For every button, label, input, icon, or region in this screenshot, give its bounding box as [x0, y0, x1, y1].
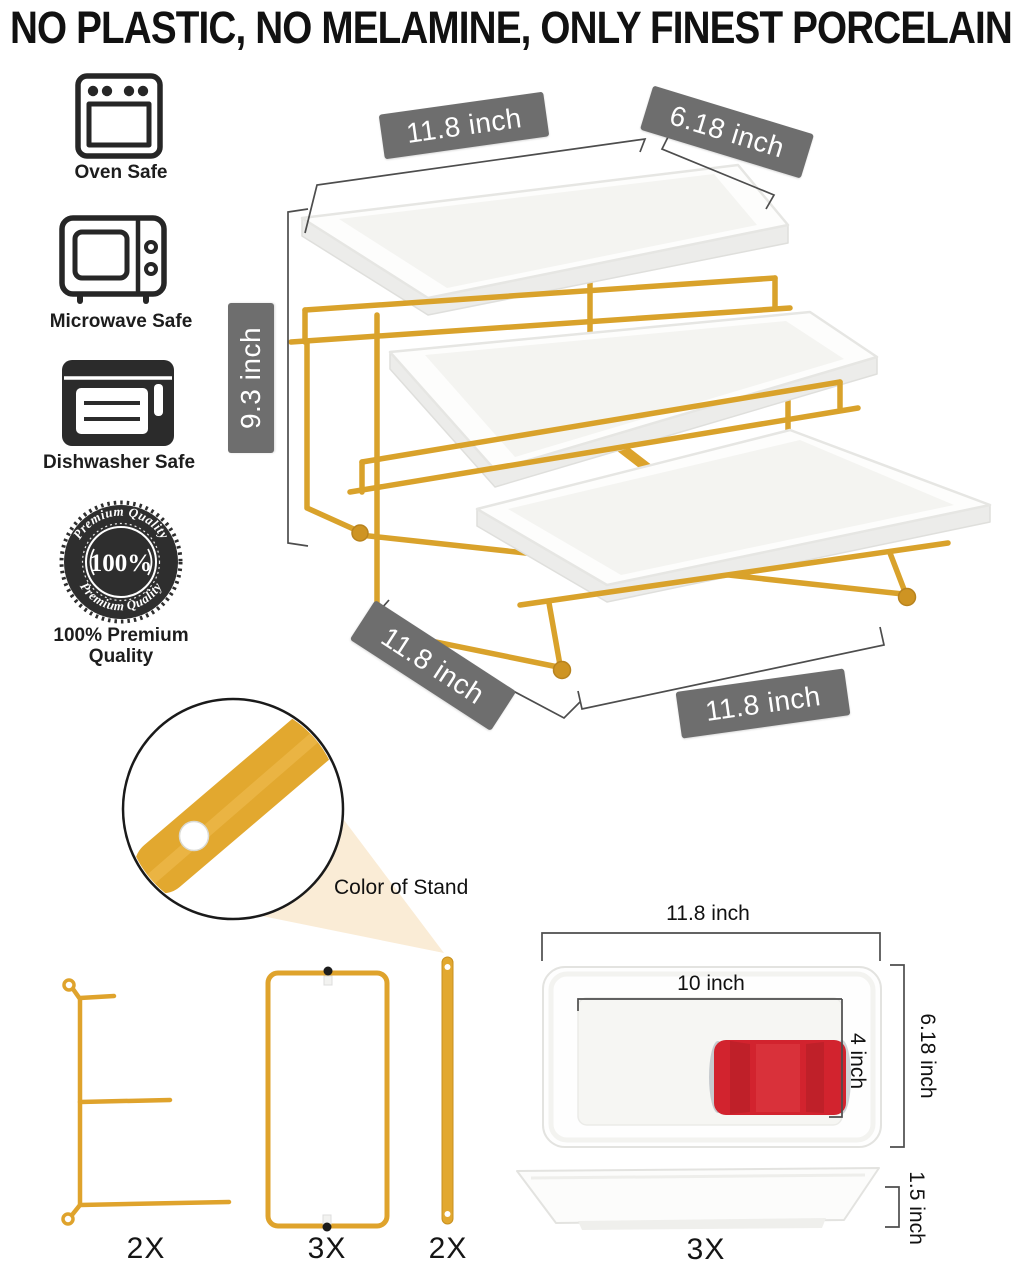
- flat-bar-qty: 2X: [403, 1232, 493, 1266]
- plate-outer-length-label: 11.8 inch: [628, 902, 788, 926]
- part-flat-bar: [442, 957, 453, 1224]
- product-infographic: NO PLASTIC, NO MELAMINE, ONLY FINEST POR…: [0, 0, 1024, 1266]
- stand-color-callout: [123, 699, 444, 953]
- oven-safe-label: Oven Safe: [36, 163, 206, 184]
- color-of-stand-label: Color of Stand: [334, 876, 468, 900]
- rect-frame-qty: 3X: [282, 1232, 372, 1266]
- part-rect-frame: [268, 967, 387, 1232]
- plate-inner-width-label: 4 inch: [845, 1016, 869, 1106]
- tiered-stand: [291, 165, 990, 679]
- dishwasher-icon: [62, 360, 174, 446]
- badge-center-text: 100%: [90, 550, 153, 577]
- plate-outer-width-label: 6.18 inch: [915, 1001, 939, 1111]
- dim-height-badge: 9.3 inch: [228, 303, 274, 453]
- plate-side-view: [517, 1168, 879, 1230]
- plate-qty: 3X: [661, 1233, 751, 1266]
- plate-height-label: 1.5 inch: [904, 1158, 928, 1258]
- ball-foot-left: [352, 525, 368, 541]
- part-side-frame: [63, 980, 229, 1224]
- side-frame-qty: 2X: [101, 1232, 191, 1266]
- ball-foot-center: [554, 662, 571, 679]
- premium-quality-badge: Premium Quality Premium Quality 100%: [62, 503, 181, 622]
- dishwasher-safe-label: Dishwasher Safe: [34, 453, 204, 474]
- microwave-safe-label: Microwave Safe: [36, 312, 206, 333]
- ball-foot-right: [899, 589, 916, 606]
- soda-can: [709, 1040, 851, 1115]
- plate-inner-length-label: 10 inch: [651, 972, 771, 996]
- premium-quality-label: 100% Premium Quality: [46, 626, 196, 667]
- oven-icon: [78, 76, 160, 156]
- microwave-icon: [62, 218, 164, 301]
